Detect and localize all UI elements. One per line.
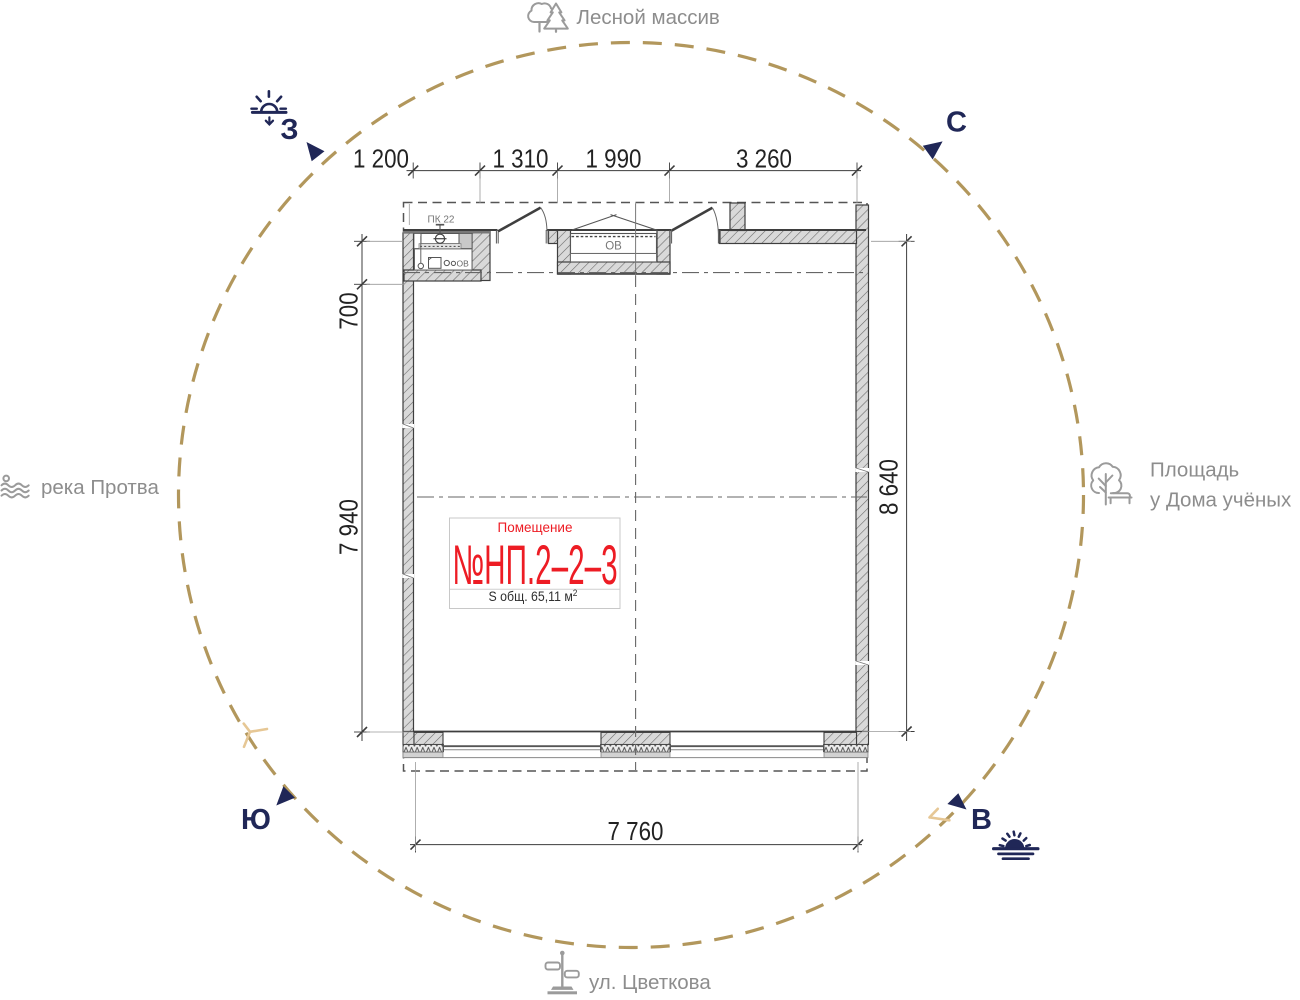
svg-text:Помещение: Помещение [498,520,573,535]
svg-text:ОВ: ОВ [605,241,622,253]
svg-text:Лесной массив: Лесной массив [577,6,720,29]
svg-text:8 640: 8 640 [875,459,904,515]
svg-text:ОВ: ОВ [457,258,470,268]
svg-text:1 200: 1 200 [353,145,409,174]
svg-text:№НП.2–2–3: №НП.2–2–3 [452,534,617,596]
svg-text:ПК 22: ПК 22 [428,215,455,226]
svg-text:Ю: Ю [241,804,271,836]
svg-text:7 940: 7 940 [335,499,364,555]
svg-text:1 310: 1 310 [493,145,549,174]
svg-text:В: В [971,804,992,836]
svg-text:3 260: 3 260 [736,145,792,174]
svg-text:700: 700 [335,292,364,329]
svg-text:З: З [280,114,298,146]
svg-text:1 990: 1 990 [586,145,642,174]
svg-text:7 760: 7 760 [608,817,664,846]
svg-text:S общ. 65,11 м2: S общ. 65,11 м2 [489,588,578,605]
svg-text:Площадь: Площадь [1150,459,1239,482]
svg-text:у Дома учёных: у Дома учёных [1150,489,1292,512]
svg-text:С: С [946,107,967,139]
svg-text:река Протва: река Протва [41,476,159,499]
svg-text:ул. Цветкова: ул. Цветкова [589,971,711,994]
